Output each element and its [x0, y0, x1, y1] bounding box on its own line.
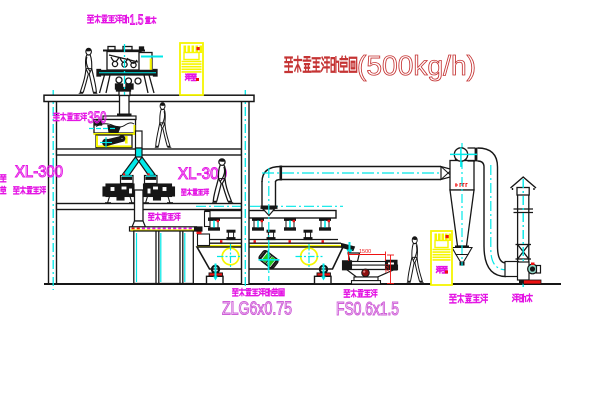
svg-text:(500kg/h): (500kg/h): [357, 50, 476, 81]
svg-text:1.5: 1.5: [130, 12, 144, 29]
svg-text:1500: 1500: [359, 249, 371, 255]
svg-text:350: 350: [88, 109, 107, 127]
svg-text:350: 350: [385, 264, 391, 273]
svg-text:XL-300: XL-300: [15, 162, 63, 181]
svg-text:ZLG6x0.75: ZLG6x0.75: [222, 299, 292, 319]
svg-text:FS0.6x1.5: FS0.6x1.5: [336, 299, 399, 319]
